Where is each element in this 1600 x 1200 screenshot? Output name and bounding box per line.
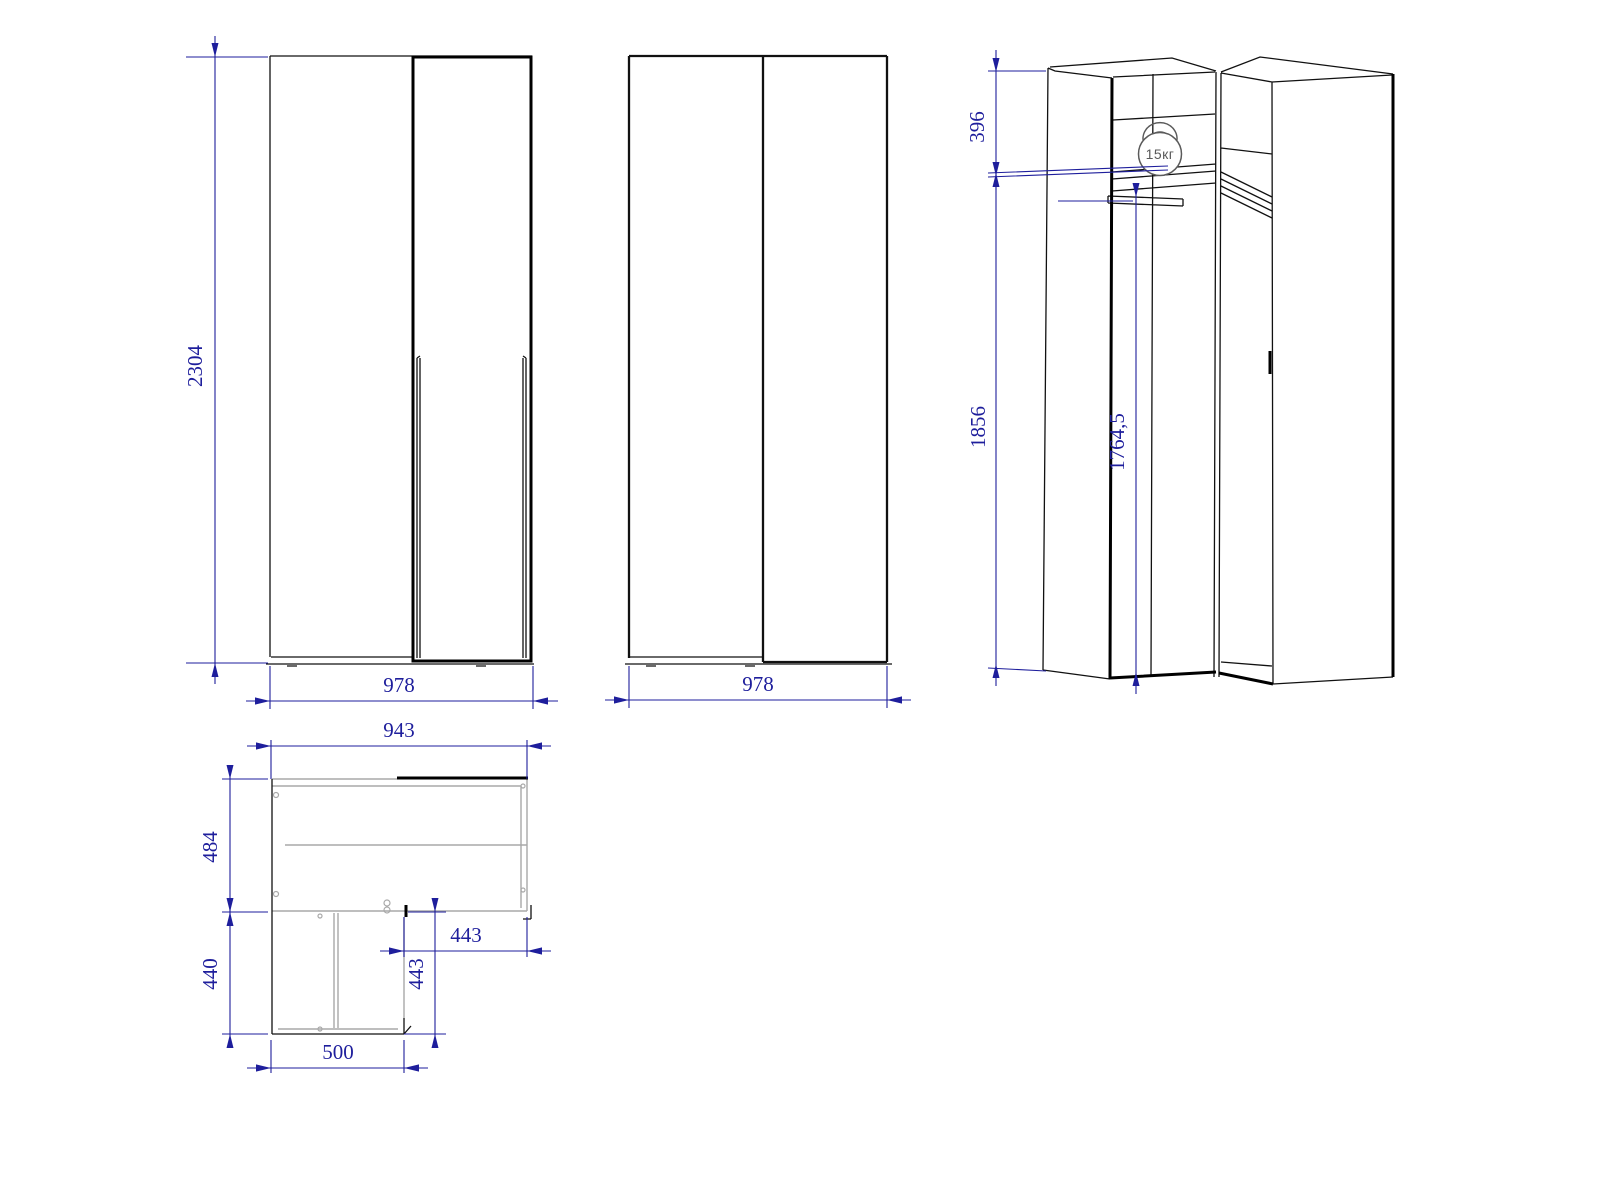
iso-view: 15кг xyxy=(1043,57,1393,684)
dim-plan-leg-width-label: 500 xyxy=(322,1040,354,1064)
fitting-mark xyxy=(384,900,390,906)
dimension-plan-corner-depth: 443 xyxy=(380,917,551,957)
plan-black-lines xyxy=(272,779,531,1034)
dim-plan-depth-label: 484 xyxy=(198,831,222,863)
dimension-plan-width: 943 xyxy=(247,718,551,779)
plan-view xyxy=(272,778,531,1034)
dim-lines xyxy=(988,50,1168,190)
weight-badge-label: 15кг xyxy=(1146,146,1175,162)
front-view-outline xyxy=(266,56,534,666)
plan-thick-lines xyxy=(397,778,528,917)
iso-lines xyxy=(1043,57,1393,684)
dimension-plan-leg-width: 500 xyxy=(247,1040,428,1073)
front-view xyxy=(266,56,534,666)
plan-gray-lines xyxy=(272,779,527,1029)
dim-front-height-label: 2304 xyxy=(183,345,207,388)
dim-back-width-label: 978 xyxy=(742,672,774,696)
dim-iso-top-section-label: 396 xyxy=(965,111,989,143)
dimension-back-width: 978 xyxy=(605,666,911,708)
fitting-mark xyxy=(384,907,390,913)
technical-drawing: 15кг 2304 978 978 xyxy=(0,0,1600,1200)
dimension-iso-rod-height: 1764,5 xyxy=(1058,183,1140,694)
fitting-mark xyxy=(521,888,525,892)
dim-plan-leg-depth-label: 440 xyxy=(198,958,222,990)
plan-fittings xyxy=(274,784,526,1031)
dimension-plan-depth: 484 xyxy=(198,765,268,926)
fitting-mark xyxy=(521,784,525,788)
dim-lines xyxy=(247,740,551,779)
front-door-panel xyxy=(413,57,531,661)
dimension-plan-inner-depth: 443 xyxy=(404,898,446,1048)
back-view xyxy=(625,56,892,666)
dimension-front-width: 978 xyxy=(246,666,558,709)
back-view-outline xyxy=(629,56,887,662)
dim-plan-width-label: 943 xyxy=(383,718,415,742)
dim-lines xyxy=(988,162,1046,686)
dim-iso-rod-height-label: 1764,5 xyxy=(1105,413,1129,471)
fitting-mark xyxy=(318,914,322,918)
dim-plan-corner-depth-label: 443 xyxy=(450,923,482,947)
dim-plan-inner-depth-label: 443 xyxy=(404,958,428,990)
weight-icon: 15кг xyxy=(1139,123,1182,176)
dimension-plan-leg-depth: 440 xyxy=(198,898,268,1048)
fitting-mark xyxy=(274,892,279,897)
dimension-front-height: 2304 xyxy=(183,36,268,684)
drawing-canvas: 15кг 2304 978 978 xyxy=(0,0,1600,1200)
dimension-iso-interior-height: 1856 xyxy=(966,162,1046,686)
fitting-mark xyxy=(274,793,279,798)
dim-iso-interior-height-label: 1856 xyxy=(966,406,990,448)
dim-front-width-label: 978 xyxy=(383,673,415,697)
